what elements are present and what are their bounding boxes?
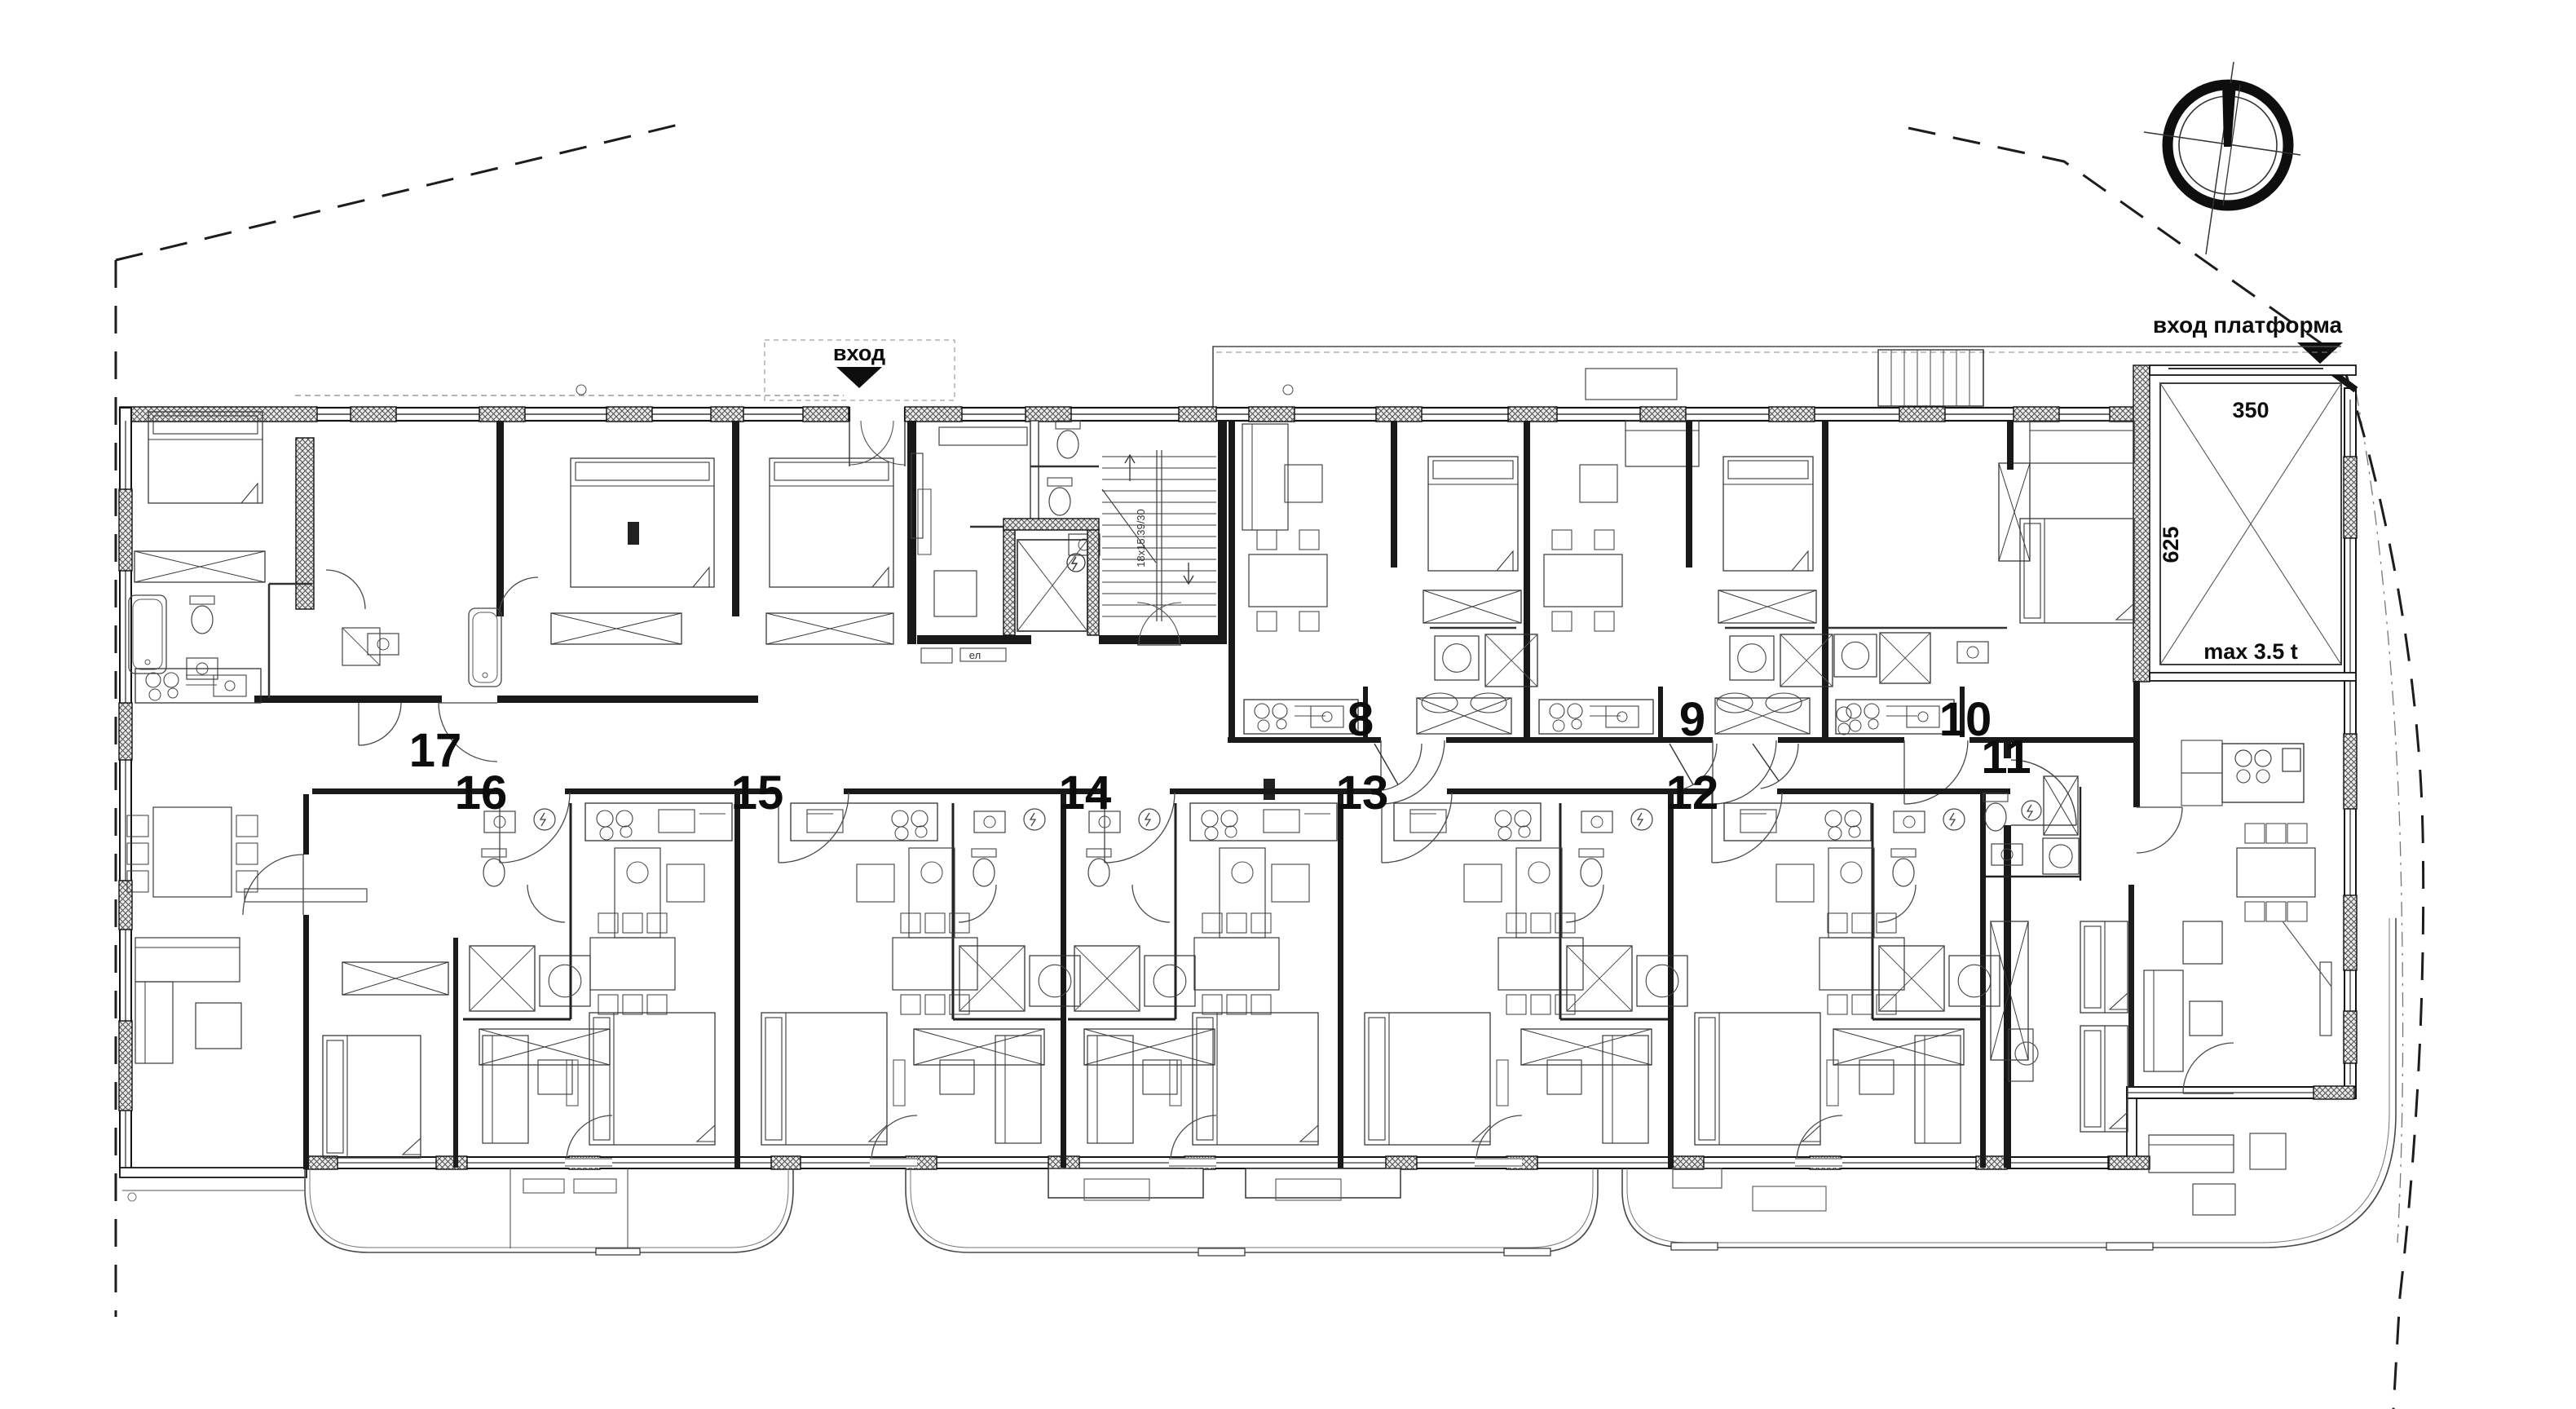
svg-text:вход: вход [833,341,885,365]
svg-text:13: 13 [1336,766,1389,819]
svg-text:625: 625 [2159,526,2183,563]
svg-text:16: 16 [455,766,508,819]
svg-text:15: 15 [731,766,784,819]
svg-text:12: 12 [1666,766,1719,819]
svg-text:ел: ел [969,649,981,661]
svg-text:17: 17 [409,724,462,777]
svg-text:9: 9 [1679,693,1705,746]
svg-text:14: 14 [1059,766,1112,819]
svg-text:8: 8 [1348,693,1374,746]
svg-text:max 3.5 t: max 3.5 t [2203,639,2298,664]
svg-text:11: 11 [1981,731,2031,784]
svg-text:350: 350 [2232,398,2269,422]
svg-text:18x15.39/30: 18x15.39/30 [1135,509,1147,568]
svg-text:вход платформа: вход платформа [2153,312,2343,338]
